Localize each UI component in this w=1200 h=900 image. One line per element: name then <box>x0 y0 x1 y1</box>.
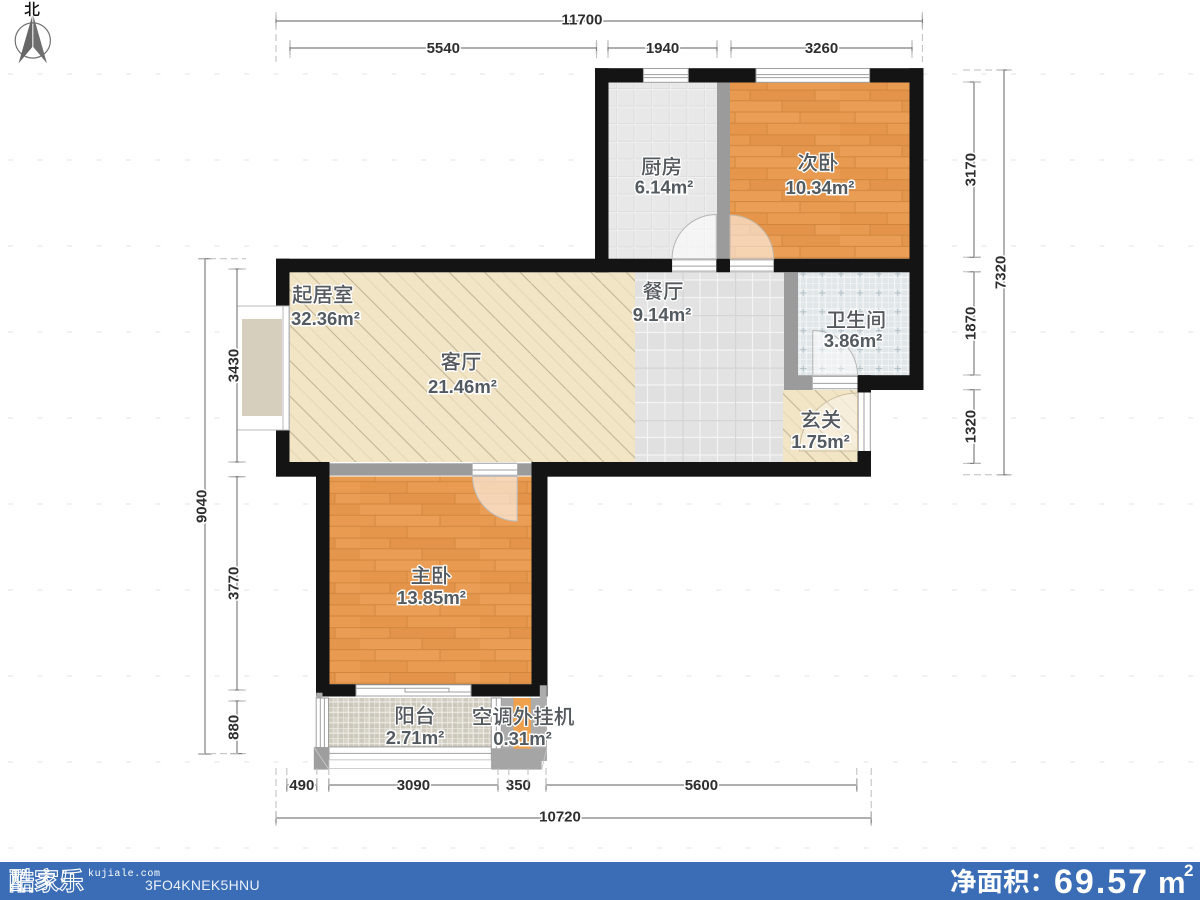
svg-text:3430: 3430 <box>226 349 243 382</box>
svg-text:350: 350 <box>506 777 531 794</box>
svg-text:10720: 10720 <box>539 809 581 826</box>
svg-text:6.14m²: 6.14m² <box>635 177 694 198</box>
svg-text:3090: 3090 <box>397 777 430 794</box>
svg-text:880: 880 <box>226 715 243 740</box>
svg-text:5540: 5540 <box>427 40 460 57</box>
svg-text:69.57: 69.57 <box>1054 863 1149 900</box>
svg-text:9040: 9040 <box>194 490 211 523</box>
svg-text:9.14m²: 9.14m² <box>633 304 692 325</box>
svg-text:490: 490 <box>289 777 314 794</box>
svg-text:3770: 3770 <box>226 567 243 600</box>
svg-text:m: m <box>1158 865 1186 900</box>
svg-text:1940: 1940 <box>646 40 679 57</box>
svg-text:1870: 1870 <box>963 307 980 340</box>
svg-text:2.71m²: 2.71m² <box>386 727 445 748</box>
svg-text:11700: 11700 <box>562 12 603 29</box>
svg-text:10.34m²: 10.34m² <box>786 177 855 198</box>
svg-text:21.46m²: 21.46m² <box>428 376 497 397</box>
svg-text:5600: 5600 <box>685 777 718 794</box>
svg-text:1.75m²: 1.75m² <box>791 431 850 452</box>
svg-text:1320: 1320 <box>963 410 980 443</box>
svg-text:32.36m²: 32.36m² <box>291 308 360 329</box>
svg-text:3260: 3260 <box>805 40 838 57</box>
svg-text:3.86m²: 3.86m² <box>824 330 883 351</box>
svg-text:3FO4KNEK5HNU: 3FO4KNEK5HNU <box>145 877 260 893</box>
svg-text:7320: 7320 <box>993 256 1010 289</box>
svg-text:2: 2 <box>1184 861 1193 880</box>
svg-text:13.85m²: 13.85m² <box>397 587 466 608</box>
svg-text:0.31m²: 0.31m² <box>493 728 552 749</box>
svg-text:3170: 3170 <box>963 153 980 186</box>
